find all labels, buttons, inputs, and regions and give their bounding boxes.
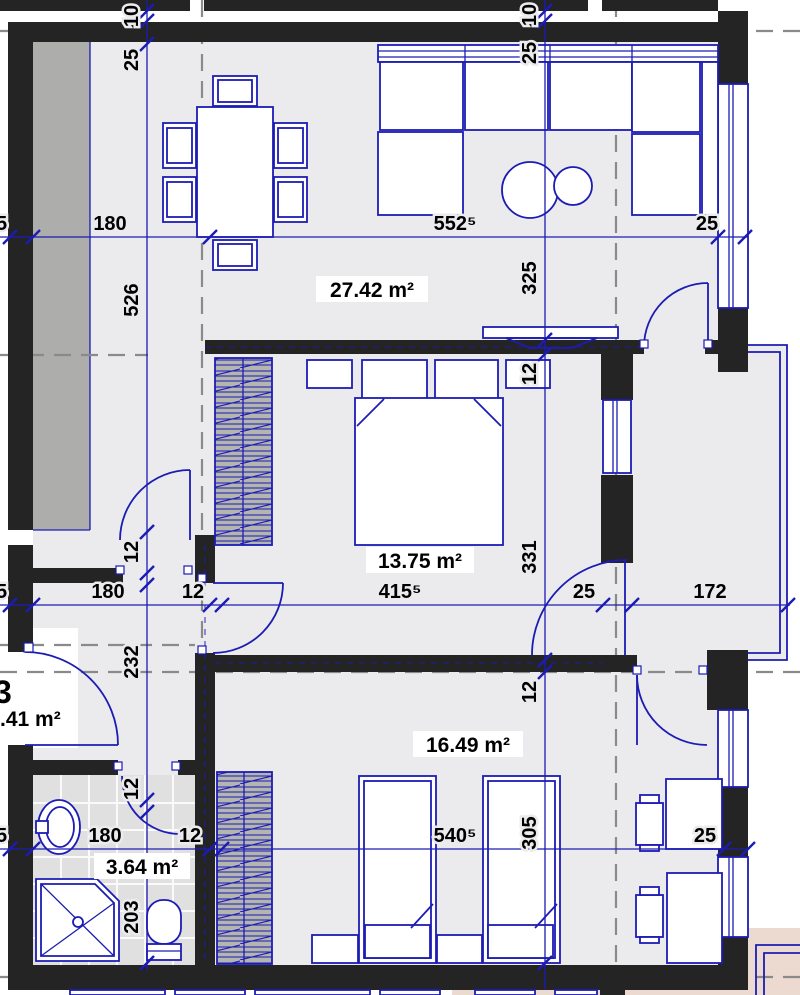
dim-label: 25: [519, 42, 541, 64]
dim-label: 325: [519, 261, 541, 294]
nightstand-kids-left: [312, 935, 358, 963]
shaft-strip: [33, 42, 90, 530]
dim-label: 180: [91, 581, 124, 603]
dim-label: 526: [121, 283, 143, 316]
toilet: [147, 900, 181, 960]
wall-segment: [601, 475, 633, 563]
dim-label: 12: [121, 778, 143, 800]
room-area-living: 27.42 m²: [330, 279, 414, 302]
dim-label: 12: [519, 363, 541, 385]
dim-label: 12: [182, 581, 204, 603]
wall-segment: [0, 0, 190, 11]
dim-label: 180: [93, 213, 126, 235]
dim-label: 12: [179, 825, 201, 847]
dim-label: 5: [0, 213, 7, 235]
dim-label: 305: [519, 816, 541, 849]
neighbor-furniture-slivers: [70, 990, 597, 995]
dim-label: 25: [121, 49, 143, 71]
wall-segment: [178, 760, 215, 775]
single-bed-1: [359, 776, 436, 963]
window-kids-upper: [718, 710, 748, 787]
wardrobe-kids: [217, 772, 272, 964]
room-area-bath: 3.64 m²: [106, 856, 178, 879]
wall-segment: [8, 545, 33, 652]
balcony-floor: [748, 345, 787, 660]
wardrobe-bedroom: [215, 358, 272, 545]
wall-bathroom-top: [33, 760, 118, 775]
floor-plan-drawing: 5 180 552⁵ 25 5 180 12 415⁵ 25 172 5 180…: [0, 0, 800, 995]
room-area-kids: 16.49 m²: [426, 734, 510, 757]
dim-label: 232: [121, 645, 143, 678]
dim-label: 12: [519, 681, 541, 703]
unit-number-cut: 3: [0, 674, 12, 710]
wall-top-band: [8, 22, 748, 42]
wall-left: [8, 22, 33, 530]
dim-label: 5: [0, 581, 7, 603]
dim-label: 12: [121, 541, 143, 563]
wall-bottom-band: [8, 965, 748, 990]
desk-chair-1: [636, 795, 663, 851]
shower-cabin: [36, 879, 119, 961]
wall-segment: [603, 655, 637, 672]
dim-label: 203: [121, 900, 143, 933]
dim-label: 540⁵: [434, 825, 477, 847]
window-living-right: [718, 84, 748, 308]
wall-segment: [8, 745, 33, 990]
dim-label: 25: [573, 581, 595, 603]
wall-corner-topright: [718, 11, 748, 84]
dim-label: 331: [519, 540, 541, 573]
dim-label: 180: [88, 825, 121, 847]
room-area-bedroom: 13.75 m²: [378, 550, 462, 573]
single-bed-2: [483, 776, 560, 963]
wall-segment: [601, 354, 633, 400]
dim-label: 25: [694, 825, 716, 847]
dim-label: 10: [121, 5, 143, 27]
dining-table: [197, 107, 273, 237]
dim-label: 5: [0, 825, 7, 847]
wall-segment: [707, 650, 748, 710]
window-bedroom-balcony: [603, 400, 631, 473]
wall-segment: [602, 0, 718, 11]
wall-segment: [600, 985, 625, 995]
nightstand-kids-middle: [437, 935, 482, 963]
dim-label: 172: [693, 581, 726, 603]
desk-2: [667, 873, 722, 963]
wall-segment: [718, 308, 748, 372]
dim-label: 552⁵: [434, 213, 477, 235]
nightstand-left: [307, 360, 352, 388]
floor-plan: 5 180 552⁵ 25 5 180 12 415⁵ 25 172 5 180…: [0, 0, 800, 995]
dim-label: 10: [519, 4, 541, 26]
dim-label: 25: [696, 213, 718, 235]
desk-chair-2: [636, 887, 663, 943]
dim-label: 415⁵: [379, 581, 422, 603]
room-area-hall-cut: .41 m²: [0, 708, 61, 731]
